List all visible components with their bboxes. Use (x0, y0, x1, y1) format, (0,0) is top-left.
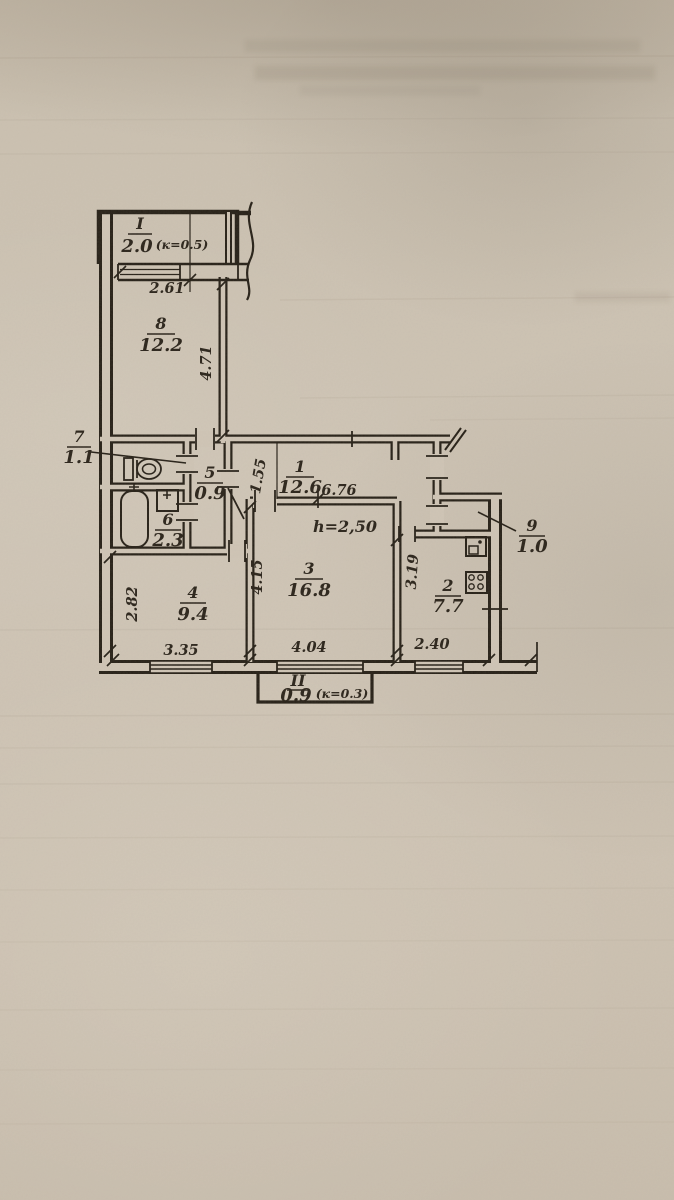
toilet-icon (124, 458, 161, 480)
bottom-windows (150, 661, 463, 673)
svg-text:6: 6 (162, 510, 173, 529)
svg-text:5: 5 (204, 463, 215, 482)
label-room-1-corridor: 1 12.6 (278, 457, 322, 498)
stove-icon (466, 572, 487, 593)
dim-room4-length: 3.35 (163, 642, 198, 659)
dim-room4-width: 2.82 (124, 586, 141, 622)
room-labels: I 2.0 (к=0.5) 8 12.2 7 1.1 5 0.9 1 12.6 … (63, 214, 548, 706)
balcony-bottom-area: 0.9 (280, 685, 312, 706)
label-room-2-kitchen: 2 7.7 (432, 576, 464, 617)
svg-text:0.9: 0.9 (194, 483, 226, 504)
label-balcony-top: I 2.0 (к=0.5) (120, 214, 208, 257)
label-balcony-bottom: II 0.9 (к=0.3) (280, 671, 368, 706)
washbasin-icon (157, 490, 178, 511)
svg-text:2: 2 (441, 576, 453, 595)
ceiling-height-note: h=2,50 (313, 517, 377, 536)
label-room-7: 7 1.1 (63, 427, 94, 468)
balcony-bottom-coef: (к=0.3) (316, 686, 369, 701)
dim-room3-width: 4.04 (291, 639, 326, 656)
label-room-6-bath: 6 2.3 (151, 510, 183, 551)
label-room-8: 8 12.2 (139, 314, 183, 356)
dim-corridor-length: 6.76 (321, 482, 356, 499)
dim-top-window: 2.61 (148, 280, 184, 297)
svg-text:7.7: 7.7 (432, 596, 464, 617)
svg-text:2.3: 2.3 (151, 530, 183, 551)
svg-text:1: 1 (294, 457, 305, 476)
floor-plan: I 2.0 (к=0.5) 8 12.2 7 1.1 5 0.9 1 12.6 … (0, 0, 674, 1200)
svg-text:1.0: 1.0 (516, 536, 548, 557)
svg-text:7: 7 (73, 427, 84, 446)
dim-room3-depth: 4.15 (249, 559, 266, 594)
svg-text:3: 3 (303, 559, 314, 578)
dim-kitchen-depth: 3.19 (403, 553, 422, 589)
svg-text:4: 4 (187, 583, 198, 602)
svg-text:12.2: 12.2 (139, 335, 183, 356)
dim-corridor-width: 1.55 (247, 457, 270, 495)
dim-room8-depth: 4.71 (198, 345, 215, 380)
balcony-top-coef: (к=0.5) (156, 237, 209, 252)
svg-text:1.1: 1.1 (63, 447, 94, 468)
label-room-4: 4 9.4 (177, 583, 208, 625)
balcony-top-area: 2.0 (120, 236, 153, 257)
svg-text:9.4: 9.4 (177, 604, 208, 625)
kitchen-sink-icon (466, 537, 486, 556)
paper-bleed-through (245, 40, 670, 302)
balcony-top-number: I (135, 214, 144, 233)
svg-text:9: 9 (526, 516, 537, 535)
svg-text:16.8: 16.8 (287, 580, 331, 601)
svg-text:12.6: 12.6 (278, 477, 322, 498)
bathtub-icon (121, 483, 148, 547)
label-room-3: 3 16.8 (287, 559, 331, 601)
scanned-floor-plan-photo: I 2.0 (к=0.5) 8 12.2 7 1.1 5 0.9 1 12.6 … (0, 0, 674, 1200)
svg-text:8: 8 (154, 314, 166, 333)
dim-kitchen-width: 2.40 (413, 636, 449, 653)
label-room-9: 9 1.0 (516, 516, 548, 557)
break-line (247, 202, 253, 300)
